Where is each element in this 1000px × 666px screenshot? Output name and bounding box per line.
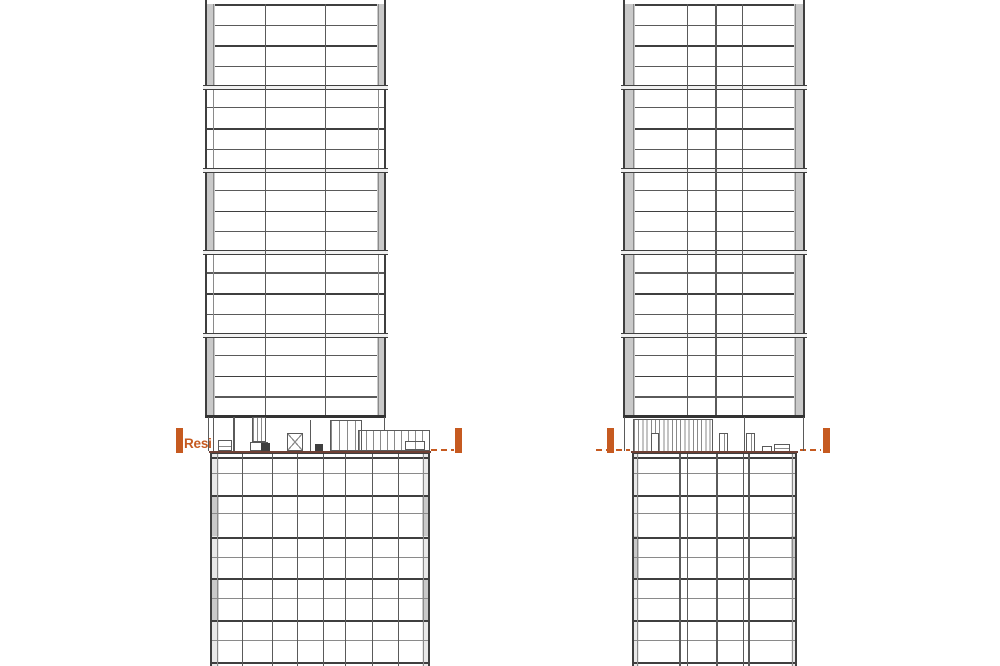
shaft-outline: [384, 0, 386, 418]
podium-mullion: [297, 454, 298, 666]
podium-mullion: [242, 454, 243, 666]
shaft-base-slab: [623, 415, 805, 418]
datum-bar: [823, 428, 830, 453]
datum-bar: [176, 428, 183, 453]
podium-top-line: [632, 453, 797, 454]
floor-line: [623, 376, 805, 378]
module-joint: [203, 85, 388, 90]
module-joint: [203, 168, 388, 173]
plant-box-detail: [219, 446, 231, 447]
podium-edge-line: [423, 452, 424, 666]
floor-line: [623, 396, 805, 397]
mullion: [742, 4, 743, 415]
floor-line: [205, 293, 386, 295]
podium-edge-line: [792, 452, 793, 666]
podium-outline: [795, 452, 797, 666]
floor-line: [205, 66, 386, 67]
module-joint: [621, 333, 807, 338]
floor-line: [623, 272, 805, 273]
plant-box-detail: [775, 448, 789, 449]
plant-wall-line: [624, 417, 625, 451]
module-joint: [621, 168, 807, 173]
podium-edge-line: [637, 452, 638, 666]
plant-wall-line: [384, 417, 385, 430]
podium-edge-line: [217, 452, 218, 666]
floor-line: [205, 211, 386, 213]
floor-line: [205, 314, 386, 315]
datum-bar: [607, 428, 614, 453]
plant-wall-line: [213, 417, 214, 451]
drawing-layer: [0, 0, 1000, 666]
podium-spandrel-line: [632, 598, 797, 599]
mullion: [715, 4, 717, 415]
podium-mullion: [748, 454, 750, 666]
edge-line: [213, 4, 214, 415]
module-joint: [621, 250, 807, 255]
elevation-canvas: Resi: [0, 0, 1000, 666]
mullion: [265, 4, 266, 415]
podium-floor-line: [632, 620, 797, 622]
podium-mullion: [398, 454, 399, 666]
plant-box-detail: [724, 434, 725, 451]
shaft-outline: [205, 0, 207, 418]
plant-louver-panel: [633, 419, 713, 452]
podium-outline: [632, 452, 634, 666]
floor-line: [205, 231, 386, 232]
floor-line: [623, 45, 805, 47]
floor-line: [205, 355, 386, 356]
podium-spandrel-line: [632, 513, 797, 514]
podium-mullion: [716, 454, 718, 666]
podium-spandrel-line: [632, 557, 797, 558]
floor-line: [623, 314, 805, 315]
floor-line: [205, 149, 386, 150]
floor-line: [623, 190, 805, 191]
floor-line: [205, 396, 386, 397]
shaft-outline: [803, 0, 805, 418]
podium-face: [632, 452, 797, 666]
floor-line: [205, 190, 386, 191]
floor-line: [205, 107, 386, 108]
mullion: [687, 4, 688, 415]
roof-line: [209, 451, 431, 453]
podium-mullion: [345, 454, 346, 666]
floor-line: [623, 66, 805, 67]
floor-line: [205, 25, 386, 26]
floor-line: [205, 376, 386, 378]
roof-line: [631, 451, 798, 453]
floor-line: [205, 128, 386, 130]
plant-wall-line: [233, 417, 235, 451]
plant-wall-line: [310, 420, 311, 451]
floor-line: [623, 355, 805, 356]
edge-line: [378, 4, 379, 415]
plant-louver-panel: [252, 417, 266, 442]
floor-line: [623, 149, 805, 150]
edge-line: [633, 4, 634, 415]
podium-floor-line: [632, 495, 797, 497]
module-joint: [203, 333, 388, 338]
module-joint: [621, 85, 807, 90]
floor-line: [623, 25, 805, 26]
floor-line: [623, 293, 805, 295]
podium-outline: [210, 452, 212, 666]
edge-line: [795, 4, 796, 415]
podium-mullion: [679, 454, 681, 666]
podium-floor-line: [632, 578, 797, 580]
shaft-outline: [623, 0, 625, 418]
floor-line: [205, 272, 386, 273]
podium-spandrel-line: [632, 640, 797, 641]
podium-spandrel-line: [632, 473, 797, 474]
podium-floor-line: [632, 457, 797, 459]
plant-wall-line: [803, 417, 804, 451]
floor-line: [623, 4, 805, 6]
mullion: [325, 4, 326, 415]
podium-floor-line: [632, 537, 797, 539]
floor-line: [623, 128, 805, 130]
datum-dashed-line: [431, 449, 454, 451]
podium-top-line: [210, 453, 430, 454]
module-joint: [203, 250, 388, 255]
floor-line: [205, 45, 386, 47]
podium-floor-line: [632, 662, 797, 664]
podium-outline: [428, 452, 430, 666]
podium-mullion: [687, 454, 688, 666]
residential-level-label: Resi: [184, 436, 212, 451]
podium-mullion: [372, 454, 373, 666]
plant-braced-frame: [287, 433, 303, 451]
podium-mullion: [743, 454, 744, 666]
plant-box-detail: [415, 442, 416, 449]
floor-line: [623, 107, 805, 108]
plant-box-detail: [751, 434, 752, 451]
datum-bar: [455, 428, 462, 453]
floor-line: [205, 4, 386, 6]
podium-mullion: [272, 454, 273, 666]
floor-line: [623, 231, 805, 232]
plant-door: [651, 433, 659, 452]
podium-mullion: [323, 454, 324, 666]
floor-line: [623, 211, 805, 213]
